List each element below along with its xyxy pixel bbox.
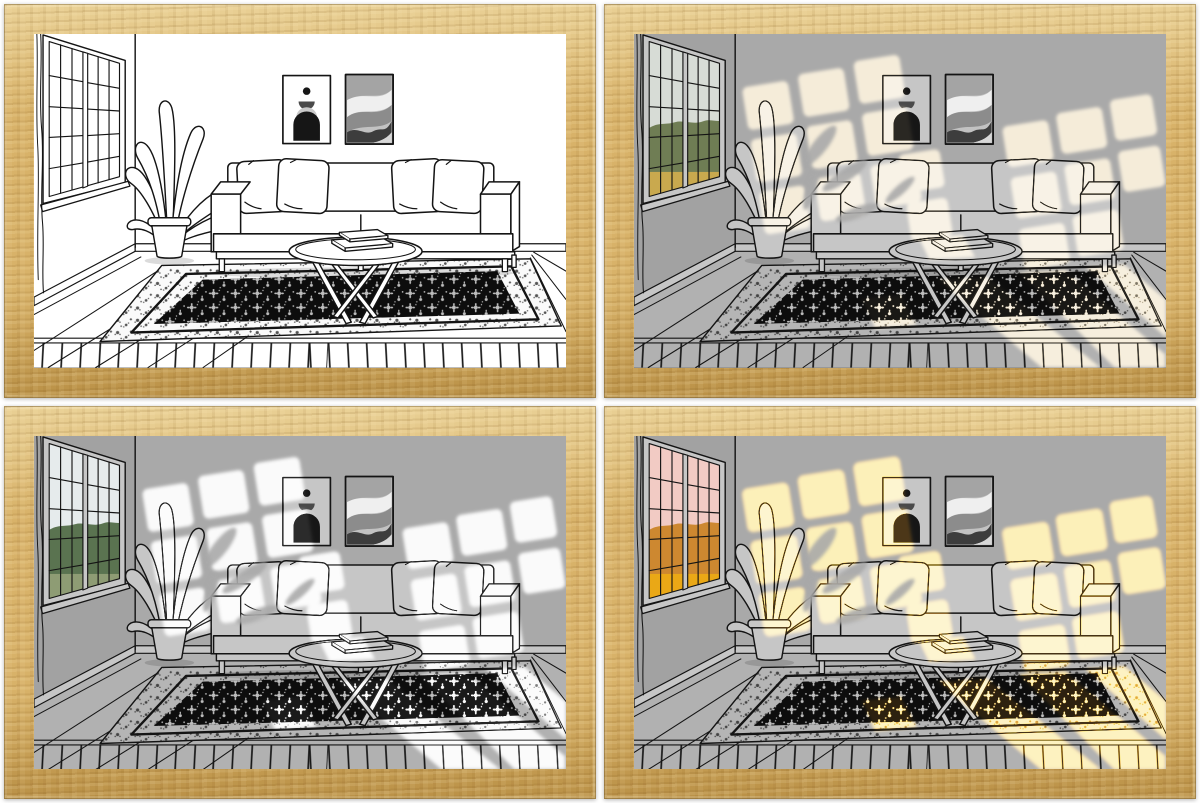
framed-print-cream-daylight <box>634 34 1166 368</box>
wood-frame-bottom-right <box>604 406 1196 800</box>
framed-print-light-off <box>34 34 566 368</box>
framed-print-golden-light <box>634 436 1166 770</box>
scene-golden-light <box>634 436 1166 770</box>
collage-cell-top-right <box>600 0 1200 402</box>
four-panel-product-collage <box>0 0 1200 803</box>
wood-frame-top-left <box>4 4 596 398</box>
framed-print-white-light <box>34 436 566 770</box>
scene-cream-daylight <box>634 34 1166 368</box>
collage-cell-bottom-left <box>0 402 600 803</box>
collage-cell-bottom-right <box>600 402 1200 803</box>
wood-frame-bottom-left <box>4 406 596 800</box>
scene-light-off <box>34 34 566 368</box>
scene-white-light <box>34 436 566 770</box>
collage-cell-top-left <box>0 0 600 402</box>
wood-frame-top-right <box>604 4 1196 398</box>
